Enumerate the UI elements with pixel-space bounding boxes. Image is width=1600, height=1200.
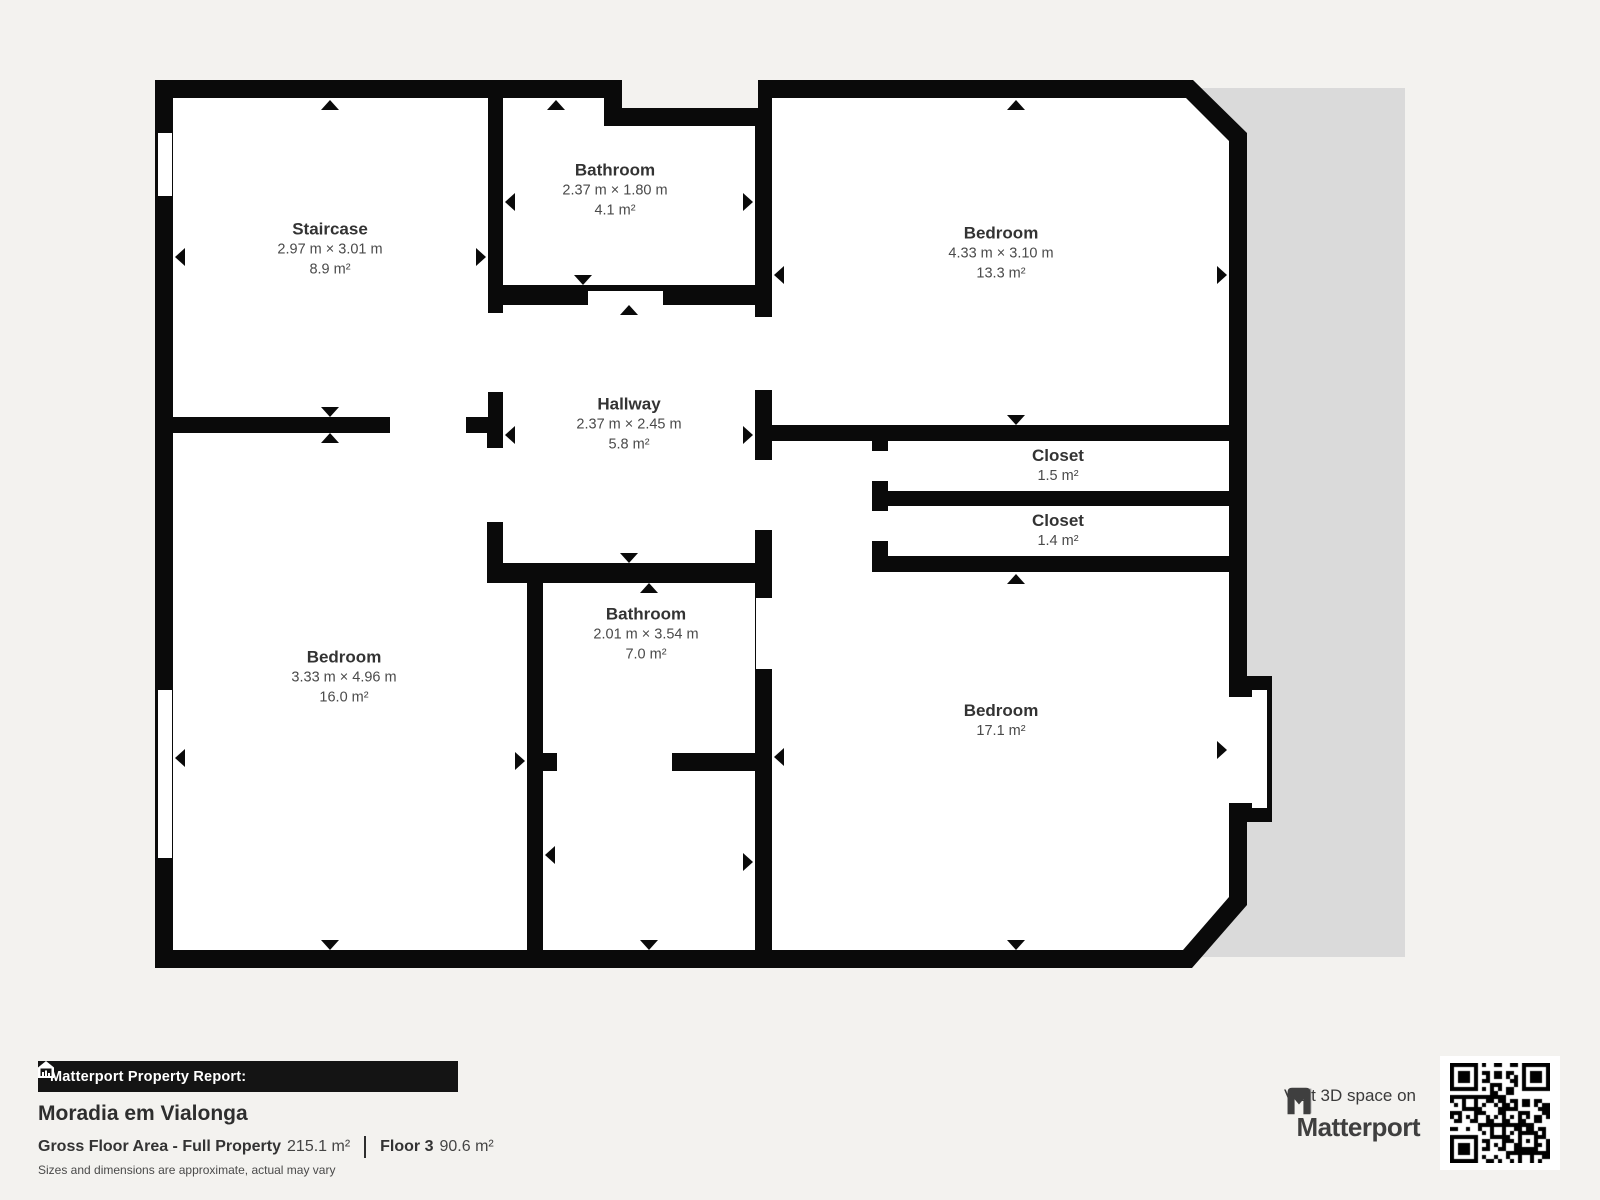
property-name: Moradia em Vialonga [38,1102,248,1126]
room-dims: 4.33 m × 3.10 m [948,245,1053,264]
room-area: 17.1 m² [964,723,1039,742]
room-bedroom-bottom-right [872,572,1229,950]
property-report-page: Staircase 2.97 m × 3.01 m 8.9 m² Bathroo… [0,0,1600,1200]
stats-separator [364,1136,366,1158]
door-bedroom-left-hallway [487,448,503,522]
room-area: 8.9 m² [277,260,382,279]
room-label-staircase: Staircase 2.97 m × 3.01 m 8.9 m² [277,219,382,280]
room-label-bathroom-top: Bathroom 2.37 m × 1.80 m 4.1 m² [562,160,667,221]
door-bathroom-top [588,291,663,305]
room-label-bathroom-mid: Bathroom 2.01 m × 3.54 m 7.0 m² [593,604,698,665]
room-dims: 2.97 m × 3.01 m [277,241,382,260]
door-closet-1 [872,451,888,481]
matterport-logo-icon [1284,1086,1314,1116]
room-area: 1.5 m² [1032,468,1084,487]
qr-panel [1440,1056,1560,1170]
room-label-bedroom-bottom-right: Bedroom 17.1 m² [964,700,1039,742]
door-staircase-bedroom [390,417,466,433]
matterport-brand: Matterport [1284,1112,1420,1143]
room-label-bedroom-top-right: Bedroom 4.33 m × 3.10 m 13.3 m² [948,223,1053,284]
gfa-value: 215.1 m² [287,1138,350,1156]
window-bedroom-left [158,690,172,858]
room-label-closet-2: Closet 1.4 m² [1032,510,1084,552]
qr-code [1450,1063,1550,1163]
room-name: Bedroom [948,223,1053,245]
area-stats: Gross Floor Area - Full Property 215.1 m… [38,1136,494,1158]
room-label-bedroom-left: Bedroom 3.33 m × 4.96 m 16.0 m² [291,647,396,708]
room-dims: 2.37 m × 1.80 m [562,182,667,201]
room-dims: 3.33 m × 4.96 m [291,669,396,688]
floor-value: 90.6 m² [440,1138,494,1156]
room-name: Bathroom [593,604,698,626]
door-hallway-corridor [755,460,772,530]
room-dims: 2.01 m × 3.54 m [593,626,698,645]
room-name: Closet [1032,510,1084,532]
room-area: 1.4 m² [1032,533,1084,552]
room-label-hallway: Hallway 2.37 m × 2.45 m 5.8 m² [576,394,681,455]
report-bar-label: Matterport Property Report: [50,1069,246,1085]
visit-3d-block: Visit 3D space on Matterport [1284,1086,1420,1143]
room-area: 4.1 m² [562,201,667,220]
gfa-label: Gross Floor Area - Full Property [38,1138,281,1156]
room-corridor [772,441,872,950]
room-name: Staircase [277,219,382,241]
door-corridor-bathroom [756,598,772,669]
room-area: 5.8 m² [576,435,681,454]
room-name: Bathroom [562,160,667,182]
room-area: 7.0 m² [593,645,698,664]
room-dims: 2.37 m × 2.45 m [576,416,681,435]
door-hallway-bedroom [755,317,772,390]
room-area: 13.3 m² [948,264,1053,283]
disclaimer-text: Sizes and dimensions are approximate, ac… [38,1163,335,1177]
room-name: Bedroom [291,647,396,669]
door-staircase-hallway [488,313,503,392]
floorplan [0,0,1600,1200]
window-staircase [158,133,172,196]
room-area: 16.0 m² [291,688,396,707]
door-closet-2 [872,511,888,541]
room-name: Hallway [576,394,681,416]
bay-window [1229,690,1267,808]
floor-label: Floor 3 [380,1138,433,1156]
house-icon [38,1061,54,1078]
room-name: Closet [1032,445,1084,467]
room-label-closet-1: Closet 1.5 m² [1032,445,1084,487]
matterport-wordmark: Matterport [1296,1112,1420,1143]
report-title-bar: Matterport Property Report: [38,1061,458,1092]
room-name: Bedroom [964,700,1039,722]
